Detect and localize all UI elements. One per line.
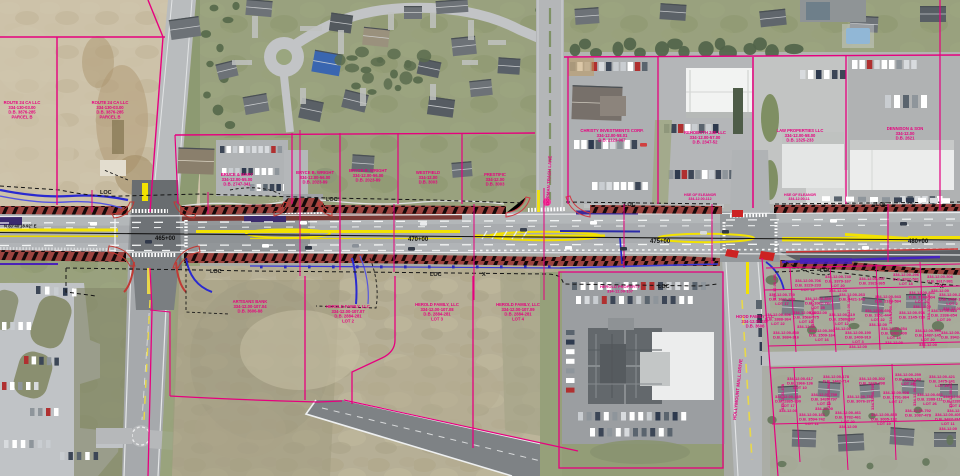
svg-text:LOC: LOC xyxy=(658,284,670,290)
svg-text:334-12.00-709: 334-12.00-709 xyxy=(870,383,875,410)
svg-text:334-12.00-478: 334-12.00-478 xyxy=(780,383,785,410)
svg-text:334-12.00-112: 334-12.00-112 xyxy=(688,197,711,201)
svg-text:D.B. 2621: D.B. 2621 xyxy=(896,136,916,141)
svg-text:334-12.00-472: 334-12.00-472 xyxy=(810,299,815,326)
svg-text:D.B. 2747-341: D.B. 2747-341 xyxy=(223,182,251,187)
svg-text:LOT 19: LOT 19 xyxy=(877,421,891,426)
svg-text:D.B. 2347-52: D.B. 2347-52 xyxy=(693,140,719,145)
svg-text:N 60°40'18.92" E: N 60°40'18.92" E xyxy=(4,224,37,229)
svg-text:D.B. 2023-89: D.B. 2023-89 xyxy=(356,178,382,183)
svg-text:D.B. 3942-700: D.B. 3942-700 xyxy=(941,335,960,340)
svg-text:D.B. 2023-89: D.B. 2023-89 xyxy=(303,180,329,185)
svg-text:334-12.00: 334-12.00 xyxy=(885,340,904,345)
svg-text:334-12.00-107: 334-12.00-107 xyxy=(607,289,634,294)
svg-text:LOT 2: LOT 2 xyxy=(342,318,355,323)
svg-text:D.B. 3606-88: D.B. 3606-88 xyxy=(238,309,264,314)
svg-text:D.B. 2145-720: D.B. 2145-720 xyxy=(899,315,926,320)
svg-text:LOT 11: LOT 11 xyxy=(805,421,819,426)
svg-text:LOT 12: LOT 12 xyxy=(801,287,815,292)
svg-text:D.B. 1087-478: D.B. 1087-478 xyxy=(905,413,932,418)
svg-text:LOT 22: LOT 22 xyxy=(771,321,785,326)
svg-text:334-12.00-113: 334-12.00-113 xyxy=(788,197,811,201)
svg-text:PARCEL B: PARCEL B xyxy=(11,114,32,119)
svg-text:D.B. 3003: D.B. 3003 xyxy=(419,180,439,185)
svg-text:D.B. 1325-233: D.B. 1325-233 xyxy=(786,138,814,143)
svg-text:480+00: 480+00 xyxy=(908,239,929,245)
svg-text:LOT 10: LOT 10 xyxy=(793,385,807,390)
svg-text:LOT 29: LOT 29 xyxy=(937,317,951,322)
svg-text:465+00: 465+00 xyxy=(155,236,176,242)
svg-text:LOC: LOC xyxy=(210,269,222,275)
svg-text:470+00: 470+00 xyxy=(408,237,429,243)
svg-text:334-12.00: 334-12.00 xyxy=(939,426,958,431)
svg-text:LOC: LOC xyxy=(430,272,442,278)
svg-text:D.B. 3421-143: D.B. 3421-143 xyxy=(839,297,866,302)
svg-text:LOC: LOC xyxy=(876,202,888,208)
svg-text:334-12.00: 334-12.00 xyxy=(919,342,938,347)
svg-text:475+00: 475+00 xyxy=(650,239,671,245)
svg-text:LOC: LOC xyxy=(326,197,338,203)
svg-text:LOC: LOC xyxy=(624,202,636,208)
svg-text:D.B. 2123-067: D.B. 2123-067 xyxy=(598,138,626,143)
svg-text:LOT 3: LOT 3 xyxy=(431,316,444,321)
svg-text:D.B. 2921-365: D.B. 2921-365 xyxy=(859,281,886,286)
svg-text:X: X xyxy=(482,272,486,278)
svg-text:PARCEL B: PARCEL B xyxy=(99,114,120,119)
svg-text:D.B. 3606: D.B. 3606 xyxy=(746,324,766,329)
svg-text:LOC: LOC xyxy=(100,190,112,196)
svg-text:LOT 26: LOT 26 xyxy=(923,401,937,406)
svg-text:334-12.00-407: 334-12.00-407 xyxy=(948,381,953,408)
svg-text:334-12.00-289: 334-12.00-289 xyxy=(846,295,851,322)
svg-text:LOT 18: LOT 18 xyxy=(899,281,913,286)
svg-text:334-12.00-370: 334-12.00-370 xyxy=(912,379,917,406)
svg-text:D.B. 3003: D.B. 3003 xyxy=(486,182,506,187)
svg-text:D.B. 3684-316: D.B. 3684-316 xyxy=(773,335,800,340)
svg-text:334-12.00-876: 334-12.00-876 xyxy=(926,293,931,320)
svg-text:LOT 17: LOT 17 xyxy=(775,301,789,306)
svg-text:334-12.00-964: 334-12.00-964 xyxy=(826,381,831,408)
svg-text:LOT 4: LOT 4 xyxy=(512,316,525,321)
svg-text:334-12.00-420: 334-12.00-420 xyxy=(888,297,893,324)
svg-text:334-12.00-281: 334-12.00-281 xyxy=(772,273,777,300)
svg-text:LOT 16: LOT 16 xyxy=(815,337,829,342)
svg-text:LOT 17: LOT 17 xyxy=(889,399,903,404)
svg-text:334-12.00: 334-12.00 xyxy=(839,424,858,429)
svg-text:334-12.00: 334-12.00 xyxy=(849,344,868,349)
